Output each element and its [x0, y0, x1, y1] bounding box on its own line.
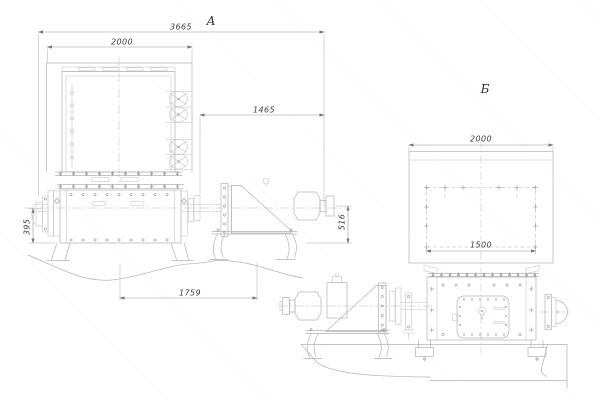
- view-a-overall-length-dim: 3665: [170, 23, 192, 32]
- view-b-supports: [301, 340, 567, 389]
- view-a-drive-height-dim: 516: [338, 214, 347, 230]
- view-a-body: [24, 190, 352, 243]
- view-a-base-length-dim: 1759: [179, 289, 201, 298]
- view-a-flanges: [56, 171, 184, 189]
- view-b-body: [427, 277, 536, 340]
- view-b-right-bearing: [540, 295, 570, 330]
- view-b-label: Б: [481, 82, 490, 96]
- view-a-label: А: [206, 14, 215, 28]
- view-a-hopper-width-dim: 2000: [111, 38, 133, 47]
- view-a-drawing: [24, 32, 352, 301]
- view-a-left-bearing: [32, 191, 54, 237]
- technical-drawing-canvas: [0, 0, 600, 400]
- view-a-supports: [28, 243, 303, 280]
- view-b-drawing: [279, 139, 570, 389]
- view-a-vibrators: [166, 92, 191, 170]
- view-a-drive-unit: [181, 178, 334, 260]
- view-b-flange: [424, 266, 539, 278]
- drawing-sheet: А Б 3665 2000 1465 395 1759 516 2000 150…: [0, 0, 600, 400]
- view-b-hopper-width-dim: 2000: [470, 135, 492, 144]
- view-a-axis-height-dim: 395: [23, 219, 32, 235]
- view-a-drive-length-dim: 1465: [253, 106, 275, 115]
- view-b-bolt-field-width-dim: 1500: [470, 241, 492, 250]
